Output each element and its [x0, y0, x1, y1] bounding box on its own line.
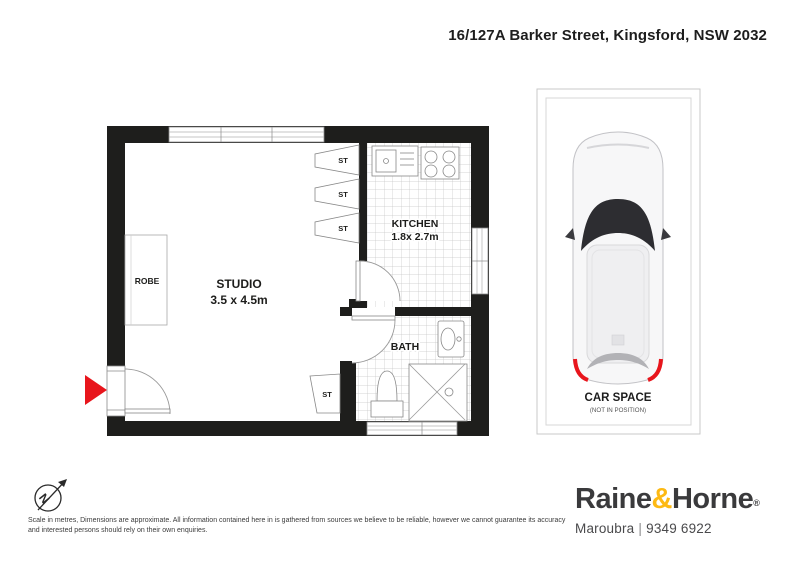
window-bottom [367, 422, 457, 435]
kitchen-door [356, 261, 360, 301]
car-top-view [565, 132, 671, 384]
basin-vanity [438, 321, 464, 357]
storage-label: ST [322, 390, 332, 399]
disclaimer-text: Scale in metres, Dimensions are approxim… [28, 516, 573, 535]
kitchen-sink [372, 146, 418, 176]
registered-mark: ® [753, 498, 760, 508]
storage-closet: ST [315, 145, 359, 175]
shower [409, 364, 467, 421]
studio-dimensions: 3.5 x 4.5m [210, 293, 267, 307]
storage-label: ST [338, 224, 348, 233]
kitchen-label: KITCHEN [392, 218, 439, 230]
brand-tagline: Maroubra|9349 6922 [575, 521, 775, 536]
kitchen-dimensions: 1.8x 2.7m [391, 231, 438, 243]
bath-label: BATH [391, 341, 419, 353]
stove-cooktop [421, 147, 459, 179]
studio-label: STUDIO [216, 277, 261, 291]
entry-arrow-icon [85, 375, 107, 405]
tagline-separator: | [634, 521, 646, 536]
kitchen-room: KITCHEN 1.8x 2.7m [356, 143, 471, 307]
car-space-note: (NOT IN POSITION) [590, 407, 646, 414]
robe-label: ROBE [135, 276, 160, 286]
robe-wardrobe: ROBE [125, 235, 167, 325]
brand-name-right: Horne [672, 483, 753, 515]
window-right [472, 228, 488, 294]
brand-ampersand: & [651, 483, 671, 515]
brand-name-left: Raine [575, 483, 651, 515]
storage-closet: ST [315, 179, 359, 209]
storage-closet: ST [310, 374, 340, 413]
property-address: 16/127A Barker Street, Kingsford, NSW 20… [448, 27, 767, 44]
office-phone: 9349 6922 [646, 521, 712, 536]
studio-room: STUDIO 3.5 x 4.5m [210, 277, 267, 307]
car-space-label: CAR SPACE [585, 392, 652, 404]
floor-plan-diagram: ROBE ST ST ST ST [75, 113, 495, 453]
bath-door [352, 316, 395, 320]
window-top [169, 127, 324, 142]
storage-closet: ST [315, 213, 359, 243]
storage-label: ST [338, 156, 348, 165]
storage-label: ST [338, 190, 348, 199]
bathroom: BATH [352, 316, 471, 421]
brand-logo: Raine&Horne® Maroubra|9349 6922 [575, 484, 775, 536]
brand-wordmark: Raine&Horne® [575, 484, 775, 518]
car-space-diagram: CAR SPACE (NOT IN POSITION) [535, 87, 703, 437]
office-name: Maroubra [575, 521, 634, 536]
floorplan-page: 16/127A Barker Street, Kingsford, NSW 20… [0, 0, 800, 566]
entry-door [107, 366, 170, 416]
